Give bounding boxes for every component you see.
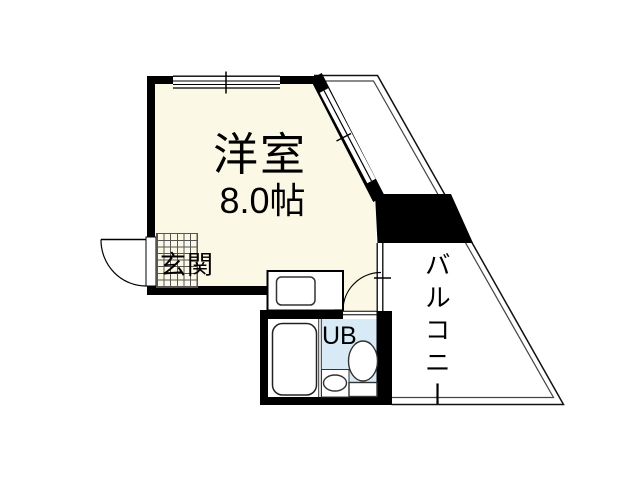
main-room-label: 洋室 xyxy=(190,131,330,178)
washbasin xyxy=(324,375,347,391)
floor-plan: 洋室 8.0帖 玄関 UB バルコニー xyxy=(0,0,640,480)
wall-balcony-trapezoid xyxy=(375,194,473,243)
ub-wall-top xyxy=(260,310,343,319)
balcony-window xyxy=(374,243,391,311)
main-room-size-label: 8.0帖 xyxy=(190,182,335,220)
entrance-door-swing-arc xyxy=(101,240,147,287)
entrance-label: 玄関 xyxy=(160,252,214,279)
ub-wall-left xyxy=(260,310,268,405)
balcony-label: バルコニー xyxy=(422,251,449,426)
wall-left xyxy=(147,76,155,237)
floor-plan-drawing xyxy=(0,0,640,480)
toilet-tank xyxy=(349,383,377,397)
bathtub xyxy=(273,324,317,396)
ub-wall-right xyxy=(377,311,393,405)
ub-wall-bottom xyxy=(260,397,392,405)
entrance-opening xyxy=(146,237,156,286)
unit-bath-label: UB xyxy=(322,323,357,349)
kitchen-sink xyxy=(277,277,316,305)
